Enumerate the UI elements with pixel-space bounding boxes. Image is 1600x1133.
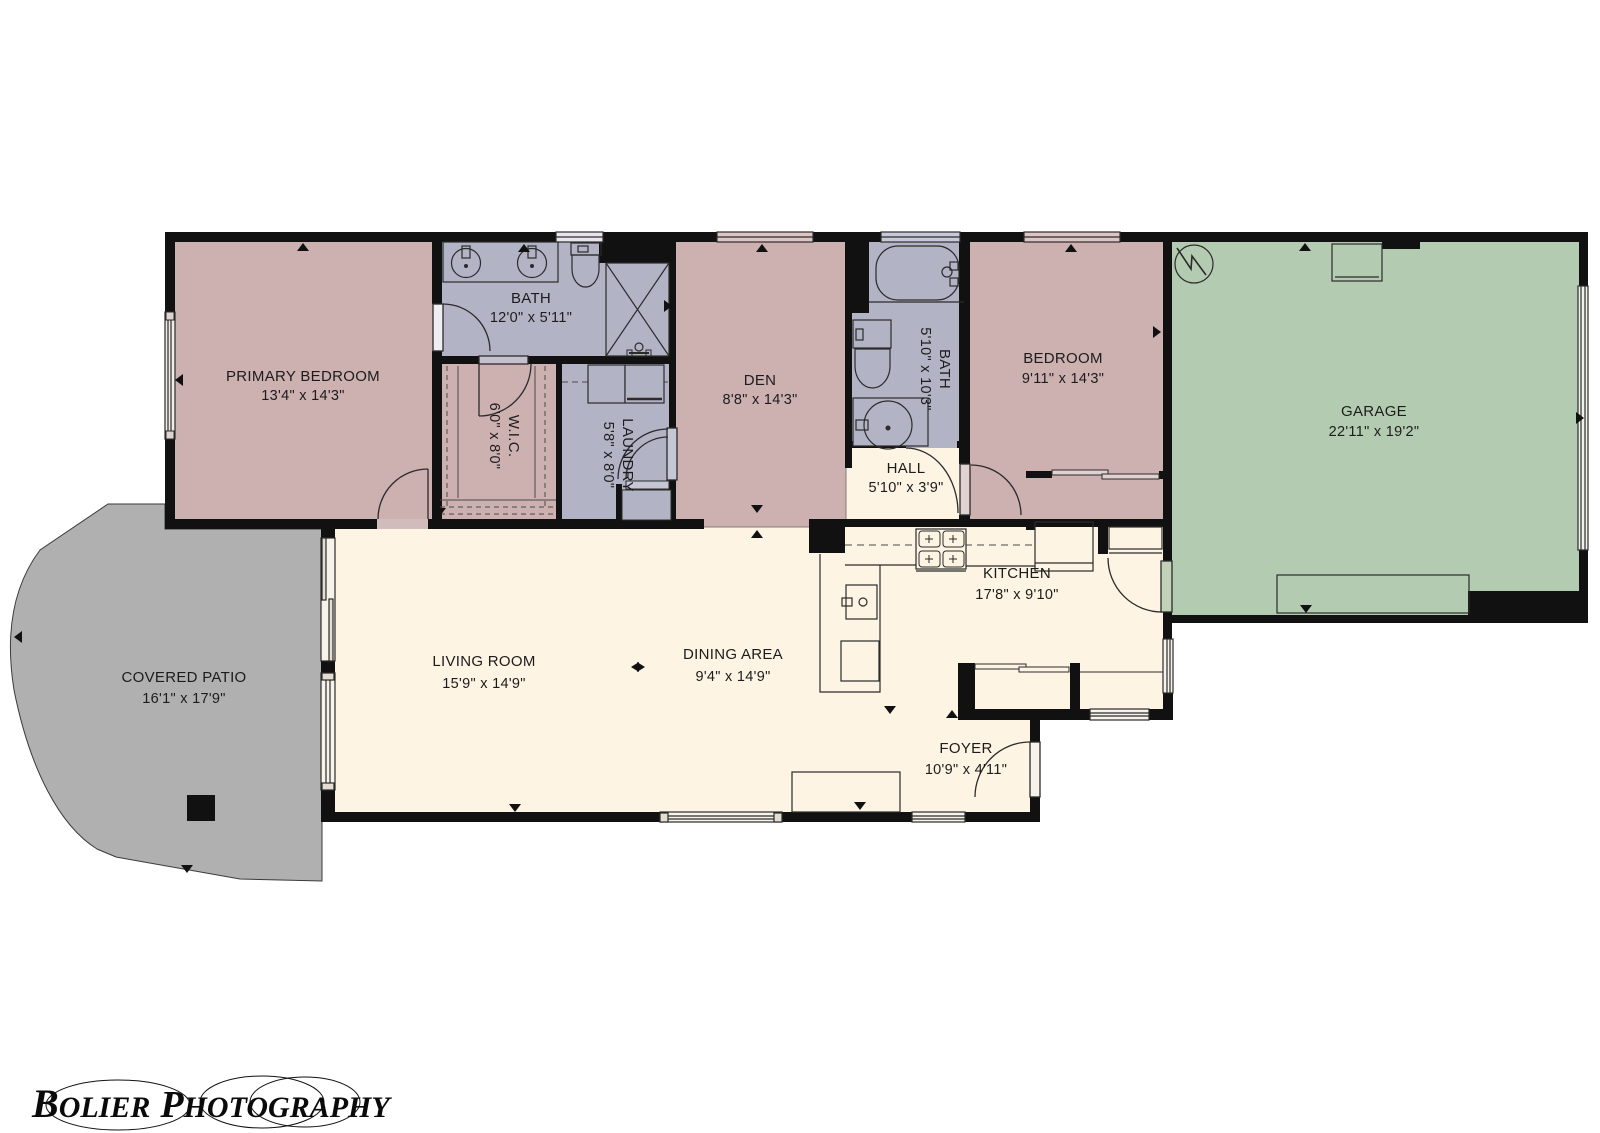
svg-text:9'4" x 14'9": 9'4" x 14'9" [695, 669, 770, 685]
svg-text:5'10" x 10'3": 5'10" x 10'3" [917, 327, 933, 410]
svg-text:BEDROOM: BEDROOM [1023, 350, 1103, 367]
svg-text:DEN: DEN [744, 372, 777, 389]
svg-text:9'11" x 14'3": 9'11" x 14'3" [1022, 371, 1104, 387]
svg-text:PRIMARY BEDROOM: PRIMARY BEDROOM [226, 368, 380, 385]
svg-text:COVERED PATIO: COVERED PATIO [121, 669, 246, 686]
svg-text:15'9" x 14'9": 15'9" x 14'9" [442, 676, 525, 692]
svg-text:6'0" x 8'0": 6'0" x 8'0" [486, 403, 502, 470]
svg-text:KITCHEN: KITCHEN [983, 565, 1051, 582]
svg-text:16'1" x 17'9": 16'1" x 17'9" [142, 691, 225, 707]
svg-text:5'8" x 8'0": 5'8" x 8'0" [600, 422, 616, 489]
svg-text:W.I.C.: W.I.C. [505, 415, 522, 458]
svg-text:LIVING ROOM: LIVING ROOM [432, 653, 535, 670]
svg-text:12'0" x 5'11": 12'0" x 5'11" [490, 310, 572, 326]
svg-text:LAUNDRY: LAUNDRY [619, 418, 636, 492]
svg-text:BATH: BATH [511, 290, 551, 307]
svg-text:HALL: HALL [887, 460, 926, 477]
svg-text:10'9" x 4'11": 10'9" x 4'11" [925, 762, 1007, 778]
svg-text:GARAGE: GARAGE [1341, 403, 1407, 420]
svg-text:13'4" x 14'3": 13'4" x 14'3" [261, 388, 344, 404]
svg-text:BATH: BATH [936, 349, 953, 389]
svg-text:5'10" x 3'9": 5'10" x 3'9" [868, 480, 943, 496]
svg-text:17'8" x 9'10": 17'8" x 9'10" [975, 587, 1058, 603]
svg-text:DINING AREA: DINING AREA [683, 646, 783, 663]
svg-text:FOYER: FOYER [939, 740, 992, 757]
svg-text:8'8" x 14'3": 8'8" x 14'3" [722, 392, 797, 408]
svg-text:22'11" x 19'2": 22'11" x 19'2" [1329, 424, 1420, 440]
